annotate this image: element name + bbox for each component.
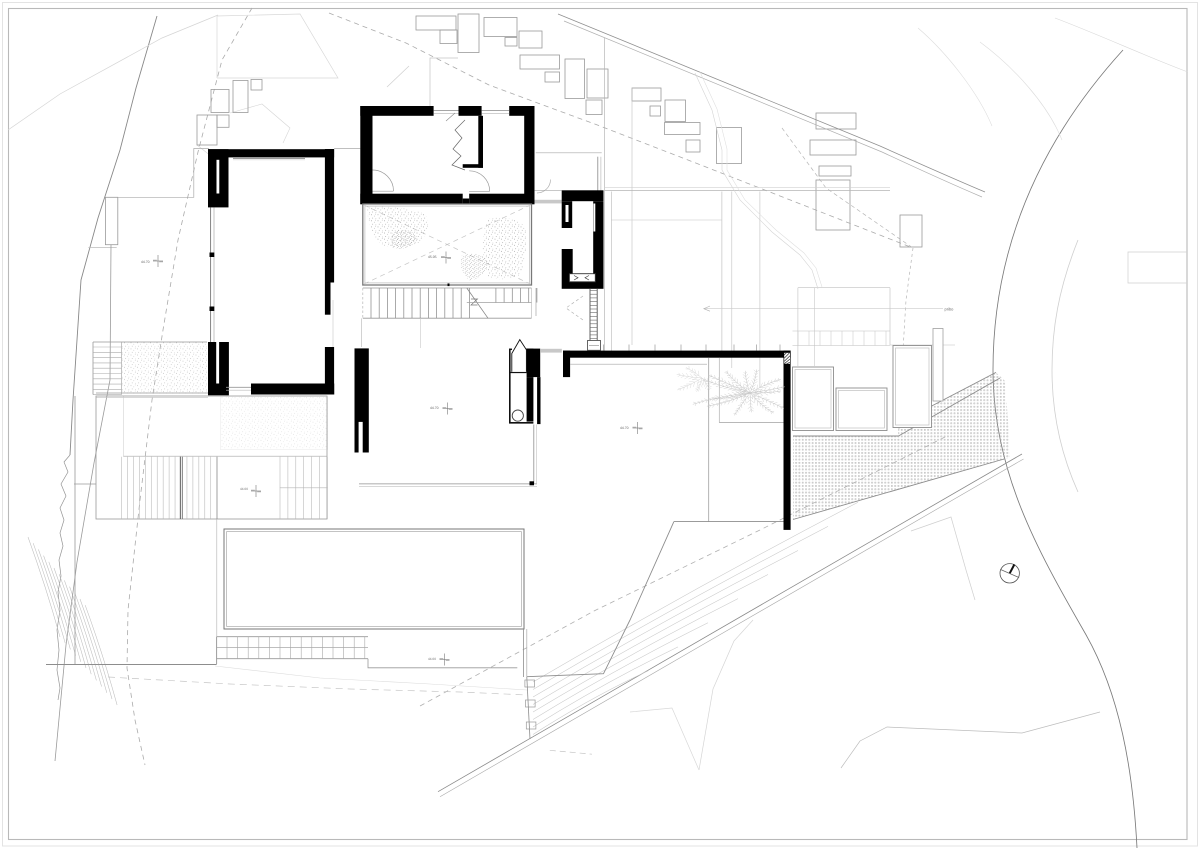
svg-text:pribo: pribo [945, 306, 955, 311]
svg-text:45.05: 45.05 [428, 255, 437, 259]
svg-text:44.70: 44.70 [141, 260, 150, 264]
svg-text:44.00: 44.00 [428, 657, 436, 661]
svg-text:44.70: 44.70 [620, 426, 629, 430]
svg-text:44.70: 44.70 [430, 406, 439, 410]
svg-text:44.00: 44.00 [240, 487, 248, 491]
